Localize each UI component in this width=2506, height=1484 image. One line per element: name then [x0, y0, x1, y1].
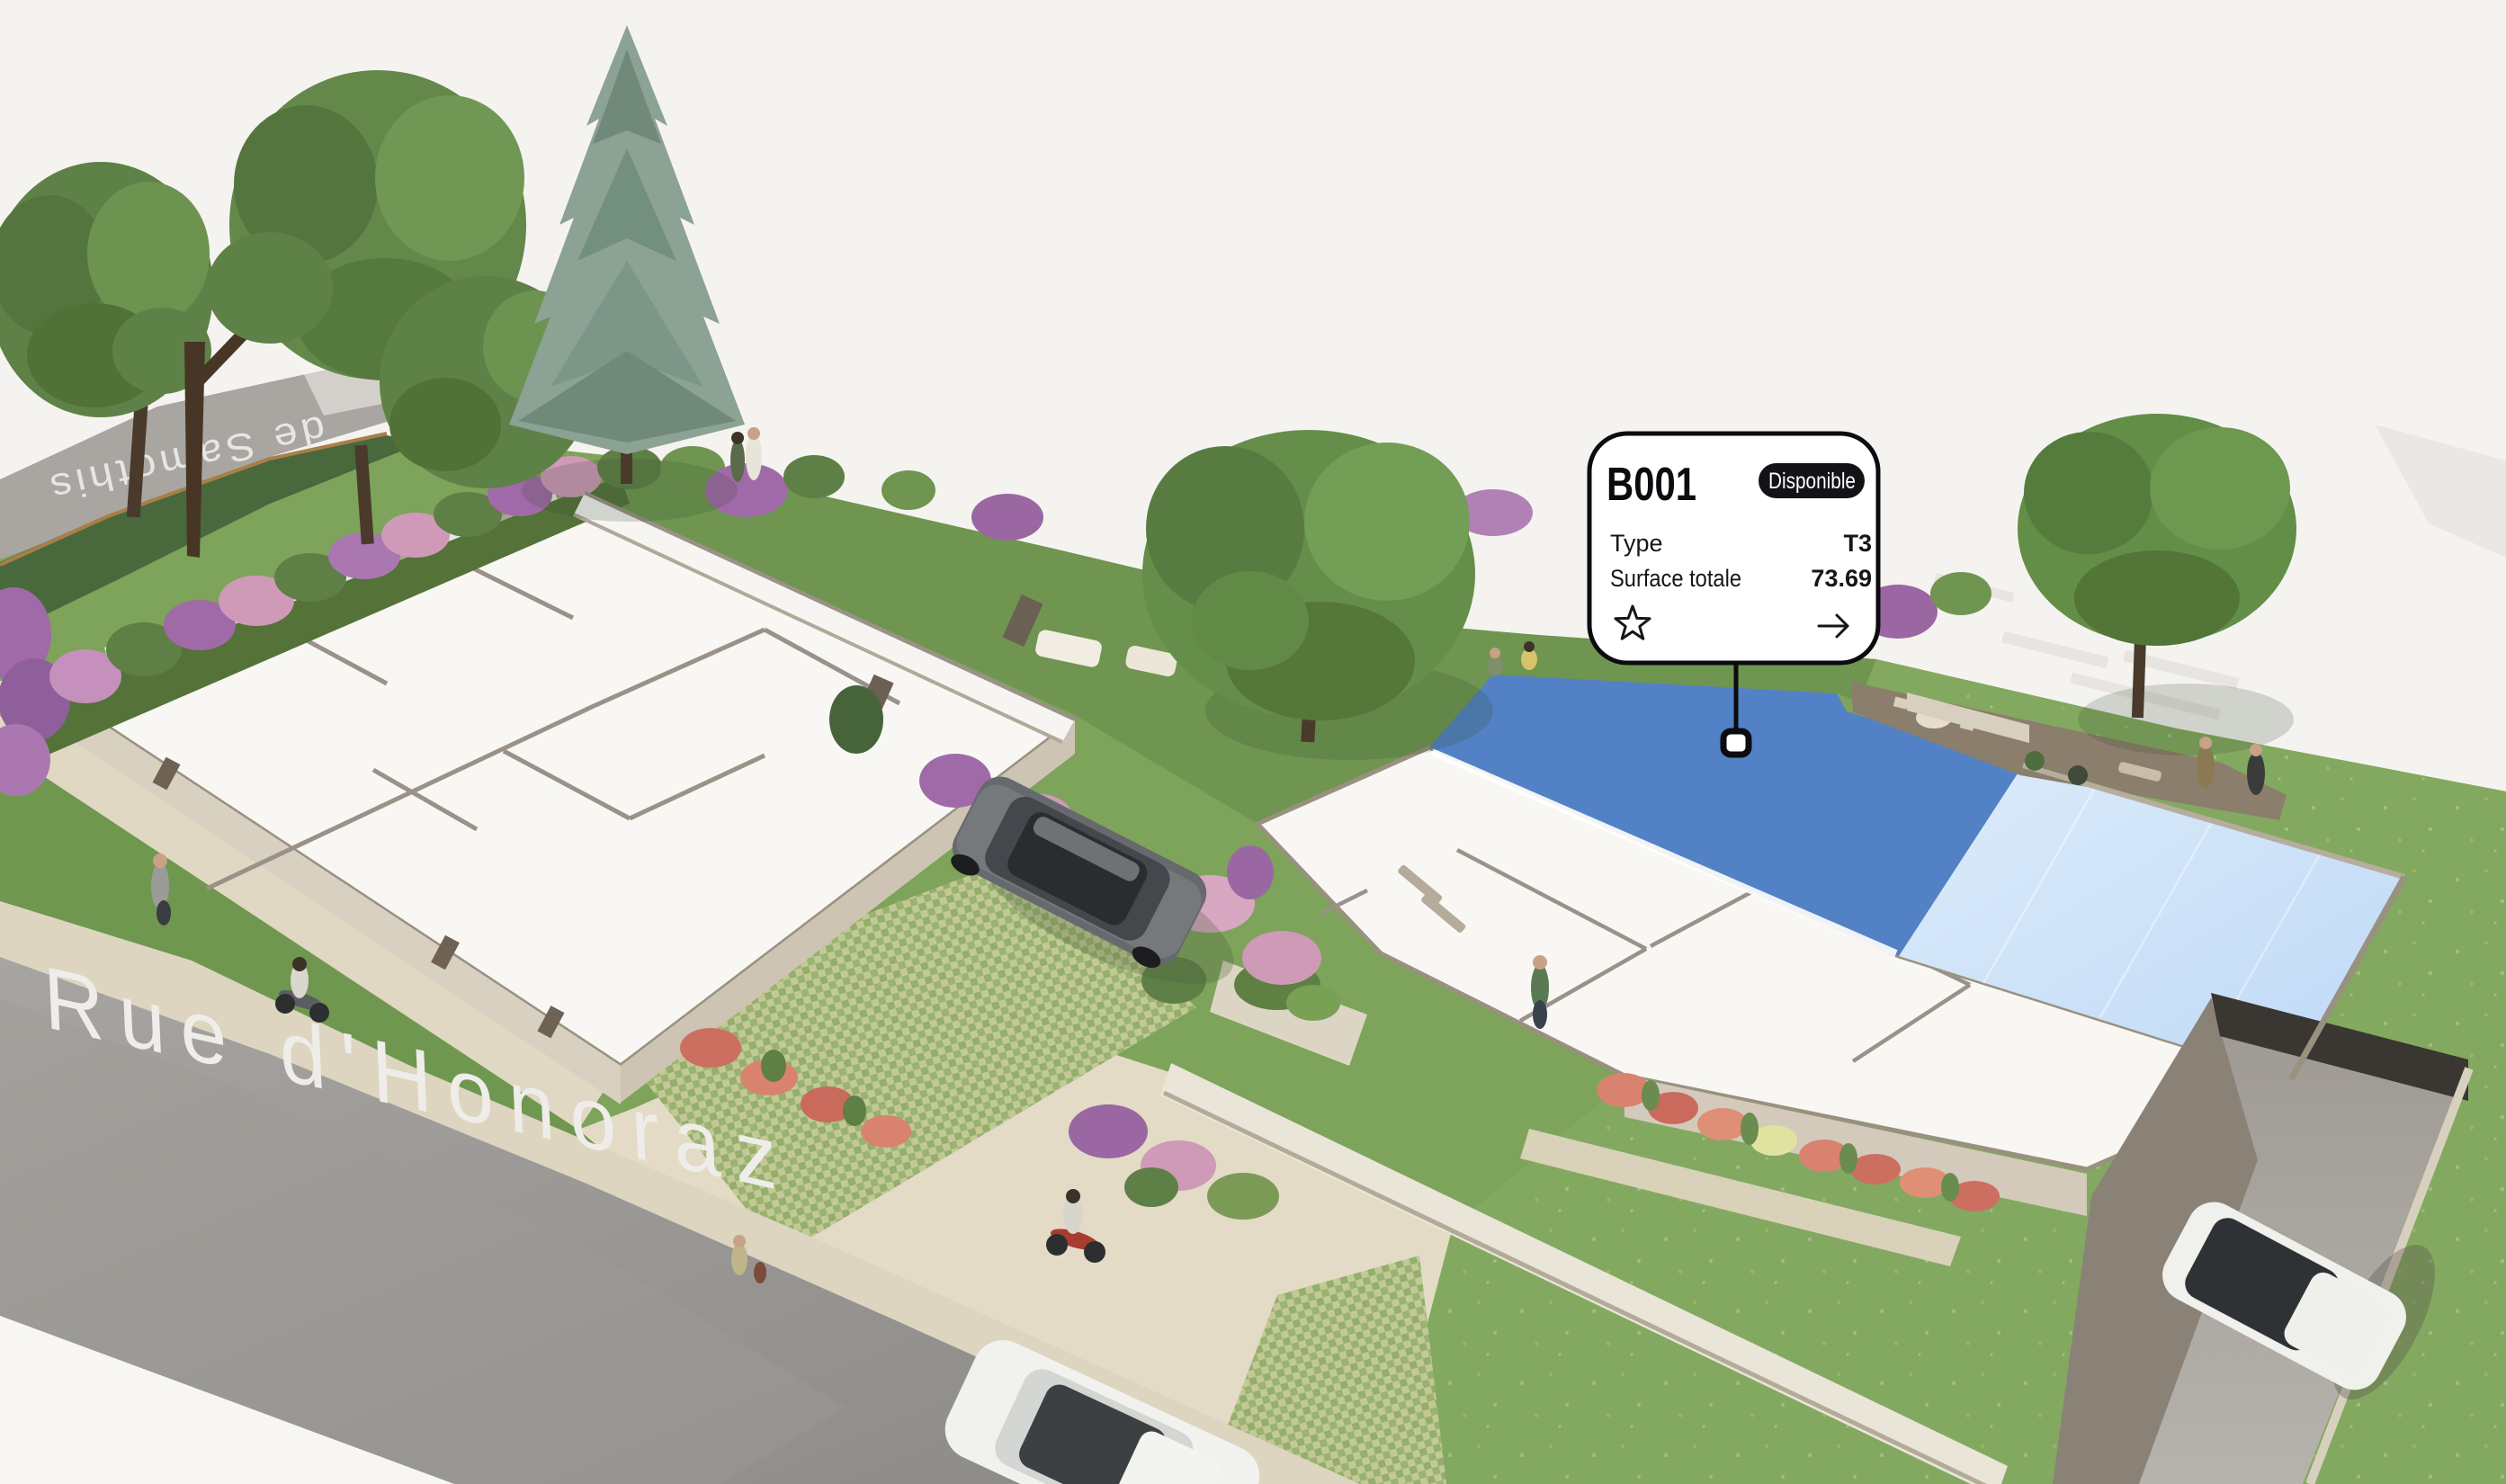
svg-text:B001: B001 — [1607, 459, 1696, 511]
svg-text:Disponible: Disponible — [1768, 469, 1856, 494]
svg-text:T3: T3 — [1843, 530, 1872, 557]
svg-text:Surface totale: Surface totale — [1610, 565, 1741, 592]
svg-text:Type: Type — [1610, 530, 1663, 557]
svg-text:73.69: 73.69 — [1811, 565, 1872, 592]
